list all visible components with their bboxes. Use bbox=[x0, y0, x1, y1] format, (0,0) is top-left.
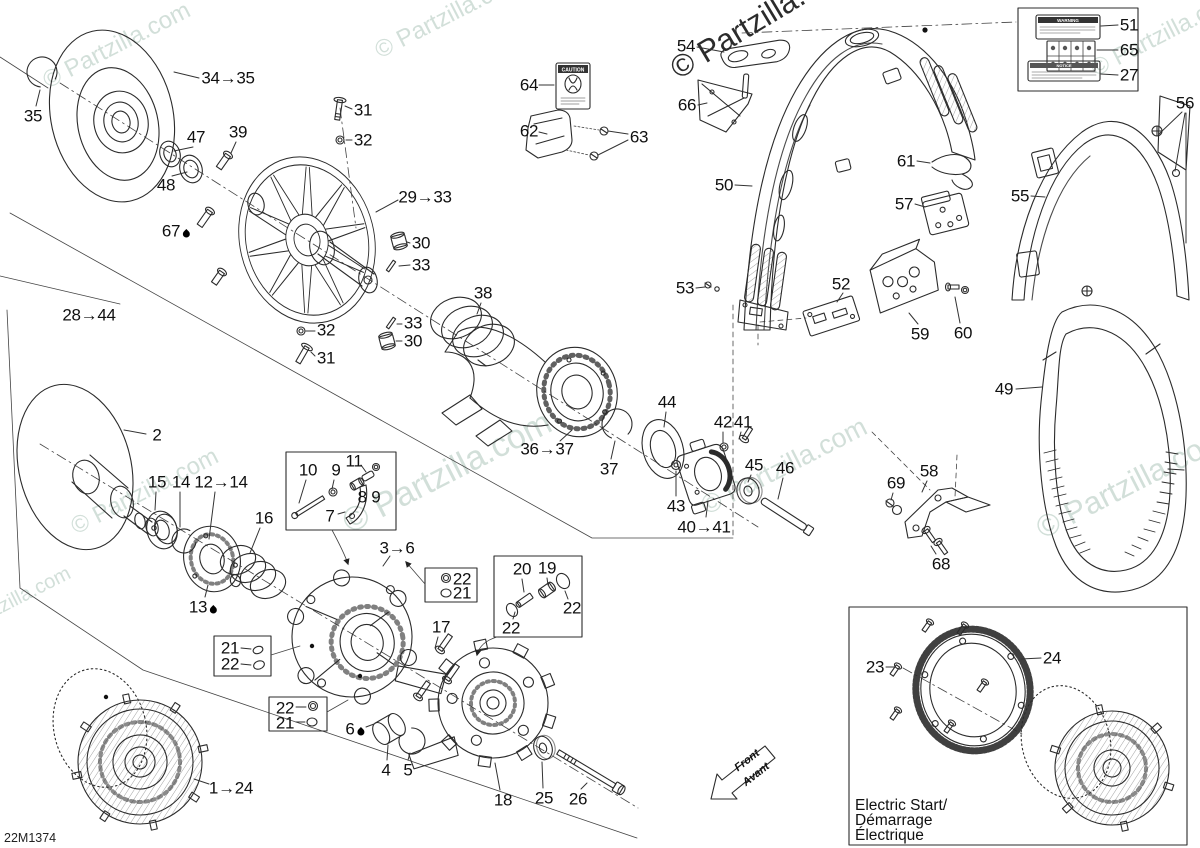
callout-22[interactable]: 22 bbox=[563, 600, 581, 617]
lubricant-drop-icon bbox=[356, 727, 366, 737]
callout-34-35[interactable]: 34→35 bbox=[201, 70, 254, 87]
callout-22[interactable]: 22 bbox=[502, 620, 520, 637]
electric-start-line3: Électrique bbox=[855, 828, 947, 843]
callout-13[interactable]: 13 bbox=[189, 599, 217, 616]
callout-57[interactable]: 57 bbox=[895, 196, 913, 213]
callout-46[interactable]: 46 bbox=[776, 460, 794, 477]
callout-30[interactable]: 30 bbox=[404, 333, 422, 350]
callout-30[interactable]: 30 bbox=[412, 235, 430, 252]
lubricant-drop-icon bbox=[209, 605, 219, 615]
callout-9[interactable]: 9 bbox=[331, 462, 340, 479]
callout-54[interactable]: 54 bbox=[677, 38, 695, 55]
callout-14[interactable]: 14 bbox=[172, 474, 190, 491]
callout-26[interactable]: 26 bbox=[569, 791, 587, 808]
callout-31[interactable]: 31 bbox=[354, 102, 372, 119]
callout-32[interactable]: 32 bbox=[317, 322, 335, 339]
callout-69[interactable]: 69 bbox=[887, 475, 905, 492]
callout-11[interactable]: 11 bbox=[345, 453, 362, 470]
callout-16[interactable]: 16 bbox=[255, 510, 273, 527]
callout-27[interactable]: 27 bbox=[1120, 67, 1138, 84]
callout-8-9[interactable]: 8 9 bbox=[358, 489, 381, 506]
callout-49[interactable]: 49 bbox=[995, 381, 1013, 398]
callout-51[interactable]: 51 bbox=[1120, 17, 1138, 34]
callout-52[interactable]: 52 bbox=[832, 276, 850, 293]
callout-45[interactable]: 45 bbox=[745, 457, 763, 474]
lubricant-drop-icon bbox=[182, 229, 192, 239]
callout-5[interactable]: 5 bbox=[403, 762, 412, 779]
callout-61[interactable]: 61 bbox=[897, 153, 915, 170]
callout-56[interactable]: 56 bbox=[1176, 95, 1194, 112]
callout-2[interactable]: 2 bbox=[152, 427, 161, 444]
callout-31[interactable]: 31 bbox=[317, 350, 335, 367]
callout-59[interactable]: 59 bbox=[911, 326, 929, 343]
callout-48[interactable]: 48 bbox=[157, 177, 175, 194]
callout-64[interactable]: 64 bbox=[520, 77, 538, 94]
callout-58[interactable]: 58 bbox=[920, 463, 938, 480]
callout-33[interactable]: 33 bbox=[404, 315, 422, 332]
callout-60[interactable]: 60 bbox=[954, 325, 972, 342]
callout-36-37[interactable]: 36→37 bbox=[520, 441, 573, 458]
callout-4[interactable]: 4 bbox=[381, 762, 390, 779]
callout-67[interactable]: 67 bbox=[162, 223, 190, 240]
callout-42[interactable]: 42 bbox=[714, 414, 732, 431]
parts-diagram-page: © Partzilla.com © Partzilla.com © Partzi… bbox=[0, 0, 1200, 848]
callout-40-41[interactable]: 40→41 bbox=[677, 519, 730, 536]
callout-18[interactable]: 18 bbox=[494, 792, 512, 809]
callout-22[interactable]: 22 bbox=[221, 656, 239, 673]
callout-29-33[interactable]: 29→33 bbox=[398, 189, 451, 206]
callout-41[interactable]: 41 bbox=[734, 414, 752, 431]
electric-start-line1: Electric Start/ bbox=[855, 798, 947, 813]
callout-63[interactable]: 63 bbox=[630, 129, 648, 146]
callout-37[interactable]: 37 bbox=[600, 461, 618, 478]
callout-10[interactable]: 10 bbox=[299, 462, 317, 479]
callout-15[interactable]: 15 bbox=[148, 474, 166, 491]
callout-21[interactable]: 21 bbox=[453, 585, 471, 602]
electric-start-caption: Electric Start/ Démarrage Électrique bbox=[855, 798, 947, 843]
callout-50[interactable]: 50 bbox=[715, 177, 733, 194]
callout-1-24[interactable]: 1→24 bbox=[209, 780, 253, 797]
callout-35[interactable]: 35 bbox=[24, 108, 42, 125]
callout-68[interactable]: 68 bbox=[932, 556, 950, 573]
callout-33[interactable]: 33 bbox=[412, 257, 430, 274]
callout-layer: 3534→35474839313229→3367303328→443233303… bbox=[0, 0, 1200, 848]
callout-55[interactable]: 55 bbox=[1011, 188, 1029, 205]
callout-44[interactable]: 44 bbox=[658, 394, 676, 411]
callout-7[interactable]: 7 bbox=[325, 508, 334, 525]
callout-43[interactable]: 43 bbox=[667, 498, 685, 515]
callout-21[interactable]: 21 bbox=[276, 715, 294, 732]
callout-65[interactable]: 65 bbox=[1120, 42, 1138, 59]
callout-24[interactable]: 24 bbox=[1043, 650, 1061, 667]
callout-25[interactable]: 25 bbox=[535, 790, 553, 807]
callout-23[interactable]: 23 bbox=[866, 659, 884, 676]
callout-6[interactable]: 6 bbox=[345, 721, 364, 738]
diagram-code: 22M1374 bbox=[4, 831, 56, 845]
callout-3-6[interactable]: 3→6 bbox=[379, 540, 414, 557]
callout-19[interactable]: 19 bbox=[538, 560, 556, 577]
callout-28-44[interactable]: 28→44 bbox=[62, 307, 115, 324]
callout-47[interactable]: 47 bbox=[187, 129, 205, 146]
callout-38[interactable]: 38 bbox=[474, 285, 492, 302]
callout-53[interactable]: 53 bbox=[676, 280, 694, 297]
callout-12-14[interactable]: 12→14 bbox=[194, 474, 247, 491]
callout-39[interactable]: 39 bbox=[229, 124, 247, 141]
callout-32[interactable]: 32 bbox=[354, 132, 372, 149]
callout-66[interactable]: 66 bbox=[678, 97, 696, 114]
callout-20[interactable]: 20 bbox=[513, 561, 531, 578]
callout-62[interactable]: 62 bbox=[520, 123, 538, 140]
callout-17[interactable]: 17 bbox=[432, 619, 450, 636]
electric-start-line2: Démarrage bbox=[855, 813, 947, 828]
